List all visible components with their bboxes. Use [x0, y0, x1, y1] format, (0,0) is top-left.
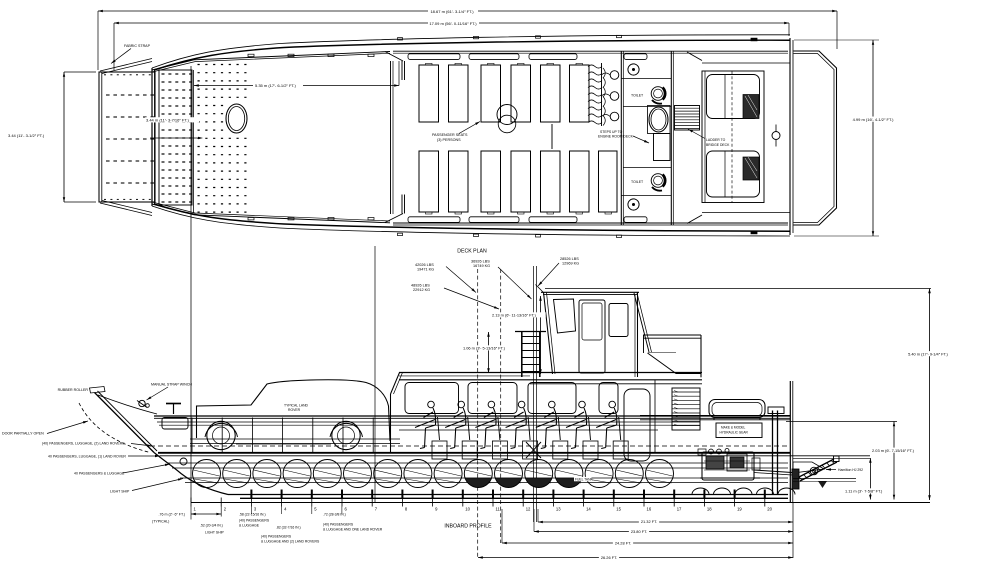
- svg-text:4.99 m (16′- 4-1/2″ FT.): 4.99 m (16′- 4-1/2″ FT.): [853, 117, 895, 122]
- svg-text:17: 17: [677, 507, 682, 512]
- svg-text:TOILET: TOILET: [631, 94, 644, 98]
- svg-text:42026 LBS: 42026 LBS: [415, 263, 434, 267]
- svg-text:21.32 FT.: 21.32 FT.: [641, 519, 657, 524]
- svg-text:28526 LBS: 28526 LBS: [560, 257, 579, 261]
- svg-text:2.03 m (6′- 7-15/16″ FT.): 2.03 m (6′- 7-15/16″ FT.): [872, 448, 915, 453]
- svg-text:26.26 FT.: 26.26 FT.: [601, 555, 617, 560]
- svg-text:15: 15: [616, 507, 621, 512]
- svg-text:& LUGGAGE AND (2) LAND ROVERS: & LUGGAGE AND (2) LAND ROVERS: [261, 540, 320, 544]
- svg-text:16749 KG: 16749 KG: [473, 264, 490, 268]
- svg-text:40 PASSENGERS & LUGGAGE: 40 PASSENGERS & LUGGAGE: [74, 472, 125, 476]
- svg-text:.52 (20-3/4 IN.): .52 (20-3/4 IN.): [200, 524, 223, 528]
- svg-text:36926 LBS: 36926 LBS: [471, 260, 490, 264]
- svg-text:19: 19: [737, 507, 742, 512]
- svg-text:(40) PASSENGERS: (40) PASSENGERS: [261, 535, 292, 539]
- svg-text:FUEL TANK: FUEL TANK: [575, 478, 594, 482]
- svg-text:(TYPICAL): (TYPICAL): [152, 520, 169, 524]
- svg-text:12: 12: [526, 507, 531, 512]
- svg-text:INBOARD PROFILE: INBOARD PROFILE: [444, 524, 492, 530]
- svg-text:PASSENGER SEATS: PASSENGER SEATS: [432, 133, 468, 137]
- svg-text:23.80 FT.: 23.80 FT.: [631, 529, 647, 534]
- svg-text:(40) PASSENGERS: (40) PASSENGERS: [323, 523, 354, 527]
- svg-text:BRIDGE DECK: BRIDGE DECK: [706, 143, 730, 147]
- svg-text:RUBBER ROLLER: RUBBER ROLLER: [58, 388, 89, 392]
- svg-text:12969 KG: 12969 KG: [562, 262, 579, 266]
- svg-text:10: 10: [465, 507, 470, 512]
- svg-text:1.06 m (3′- 5-13/16″ FT.): 1.06 m (3′- 5-13/16″ FT.): [463, 346, 506, 351]
- svg-text:MAKE & MODEL: MAKE & MODEL: [721, 426, 745, 430]
- svg-text:17.09 m (56′- 0-11/16″ FT.): 17.09 m (56′- 0-11/16″ FT.): [429, 21, 477, 26]
- svg-text:ROVER: ROVER: [288, 408, 301, 412]
- svg-text:18.67 m (61′- 3-1/4″ FT.): 18.67 m (61′- 3-1/4″ FT.): [430, 9, 474, 14]
- svg-text:LIGHT SHIP: LIGHT SHIP: [205, 531, 225, 535]
- svg-text:ENGINE ROOM DECK: ENGINE ROOM DECK: [598, 135, 634, 139]
- svg-text:3.44 (11′- 3-1/2″ FT.): 3.44 (11′- 3-1/2″ FT.): [8, 133, 45, 138]
- svg-text:LIGHT SHIP: LIGHT SHIP: [110, 490, 130, 494]
- svg-text:DOOR PARTIALLY OPEN: DOOR PARTIALLY OPEN: [2, 432, 44, 436]
- svg-text:1.11 m (3′- 7-5/8″ FT.): 1.11 m (3′- 7-5/8″ FT.): [845, 489, 883, 494]
- svg-text:.82 (32-7/16 IN.): .82 (32-7/16 IN.): [276, 526, 301, 530]
- svg-text:40 PASSENGERS, LUGGAGE, (1) LA: 40 PASSENGERS, LUGGAGE, (1) LAND ROVER: [48, 455, 126, 459]
- svg-text:MANUAL STRAP WINCH: MANUAL STRAP WINCH: [151, 383, 192, 387]
- svg-text:18: 18: [707, 507, 712, 512]
- svg-text:& LUGGAGE: & LUGGAGE: [239, 524, 260, 528]
- svg-text:2.13 m (6′- 11-13/16″ FT.): 2.13 m (6′- 11-13/16″ FT.): [492, 313, 536, 318]
- svg-text:19471 KG: 19471 KG: [417, 268, 434, 272]
- svg-text:5.40 m (17′- 9-1/4″ FT.): 5.40 m (17′- 9-1/4″ FT.): [908, 351, 948, 356]
- svg-text:HYDRAULIC GEAR: HYDRAULIC GEAR: [720, 431, 749, 435]
- svg-text:14: 14: [586, 507, 591, 512]
- svg-text:LADDER TO: LADDER TO: [706, 138, 726, 142]
- svg-text:STEPS UP TO: STEPS UP TO: [600, 130, 623, 134]
- svg-text:(40) PASSENGERS: (40) PASSENGERS: [239, 519, 270, 523]
- svg-text:22912 KG: 22912 KG: [413, 288, 430, 292]
- svg-text:20: 20: [767, 507, 772, 512]
- svg-text:TOILET: TOILET: [631, 180, 644, 184]
- svg-text:.72 (28-3/8 IN.): .72 (28-3/8 IN.): [323, 513, 346, 517]
- svg-text:Hamilton HJ 292: Hamilton HJ 292: [838, 468, 863, 472]
- svg-text:(40) PASSENGERS, LUGGAGE, (2): (40) PASSENGERS, LUGGAGE, (2) LAND ROVER…: [42, 442, 125, 446]
- svg-text:.58 (22-15/16 IN.): .58 (22-15/16 IN.): [239, 513, 266, 517]
- svg-text:3.44 m (11′- 3-7/16″ FT.): 3.44 m (11′- 3-7/16″ FT.): [146, 118, 189, 123]
- svg-text:16: 16: [647, 507, 652, 512]
- svg-text:.76 m (2′- 6″ FT.): .76 m (2′- 6″ FT.): [158, 513, 185, 517]
- svg-text:FABRIC STRAP: FABRIC STRAP: [124, 44, 151, 48]
- svg-text:48926 LBS: 48926 LBS: [411, 284, 430, 288]
- svg-text:& LUGGAGE AND ONE LAND ROVER: & LUGGAGE AND ONE LAND ROVER: [323, 528, 383, 532]
- svg-text:5.35 m (17′- 6-1/2″ FT.): 5.35 m (17′- 6-1/2″ FT.): [255, 83, 297, 88]
- svg-text:11: 11: [496, 507, 501, 512]
- svg-text:13: 13: [556, 507, 561, 512]
- svg-text:24.28 FT.: 24.28 FT.: [615, 541, 631, 546]
- svg-text:(3) PERSONS: (3) PERSONS: [437, 138, 461, 142]
- svg-text:DECK PLAN: DECK PLAN: [457, 249, 487, 255]
